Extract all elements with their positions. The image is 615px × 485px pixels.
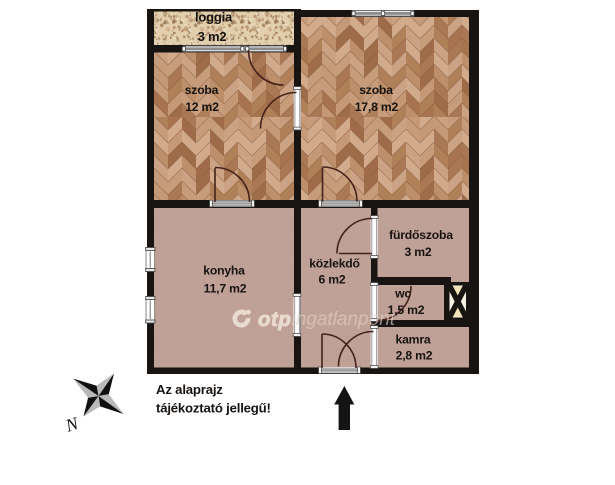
- svg-text:kamra: kamra: [396, 333, 431, 347]
- svg-text:3 m2: 3 m2: [405, 245, 432, 259]
- svg-text:fürdőszoba: fürdőszoba: [389, 228, 453, 242]
- svg-text:17,8 m2: 17,8 m2: [355, 100, 399, 114]
- svg-text:2,8 m2: 2,8 m2: [396, 349, 433, 363]
- svg-text:tájékoztató jellegű!: tájékoztató jellegű!: [156, 400, 271, 415]
- svg-text:Az alaprajz: Az alaprajz: [156, 382, 223, 397]
- svg-text:konyha: konyha: [203, 264, 245, 278]
- svg-text:szoba: szoba: [359, 83, 393, 97]
- svg-text:otp: otp: [258, 308, 291, 331]
- svg-text:11,7 m2: 11,7 m2: [204, 282, 247, 296]
- svg-text:ingatlanpont: ingatlanpont: [292, 309, 396, 330]
- svg-text:wc: wc: [394, 287, 411, 301]
- svg-text:12 m2: 12 m2: [185, 100, 219, 114]
- svg-text:6 m2: 6 m2: [319, 273, 346, 287]
- svg-text:közlekdő: közlekdő: [309, 257, 360, 271]
- svg-text:szoba: szoba: [185, 83, 219, 97]
- svg-text:loggia: loggia: [195, 10, 233, 25]
- svg-text:3 m2: 3 m2: [198, 29, 227, 44]
